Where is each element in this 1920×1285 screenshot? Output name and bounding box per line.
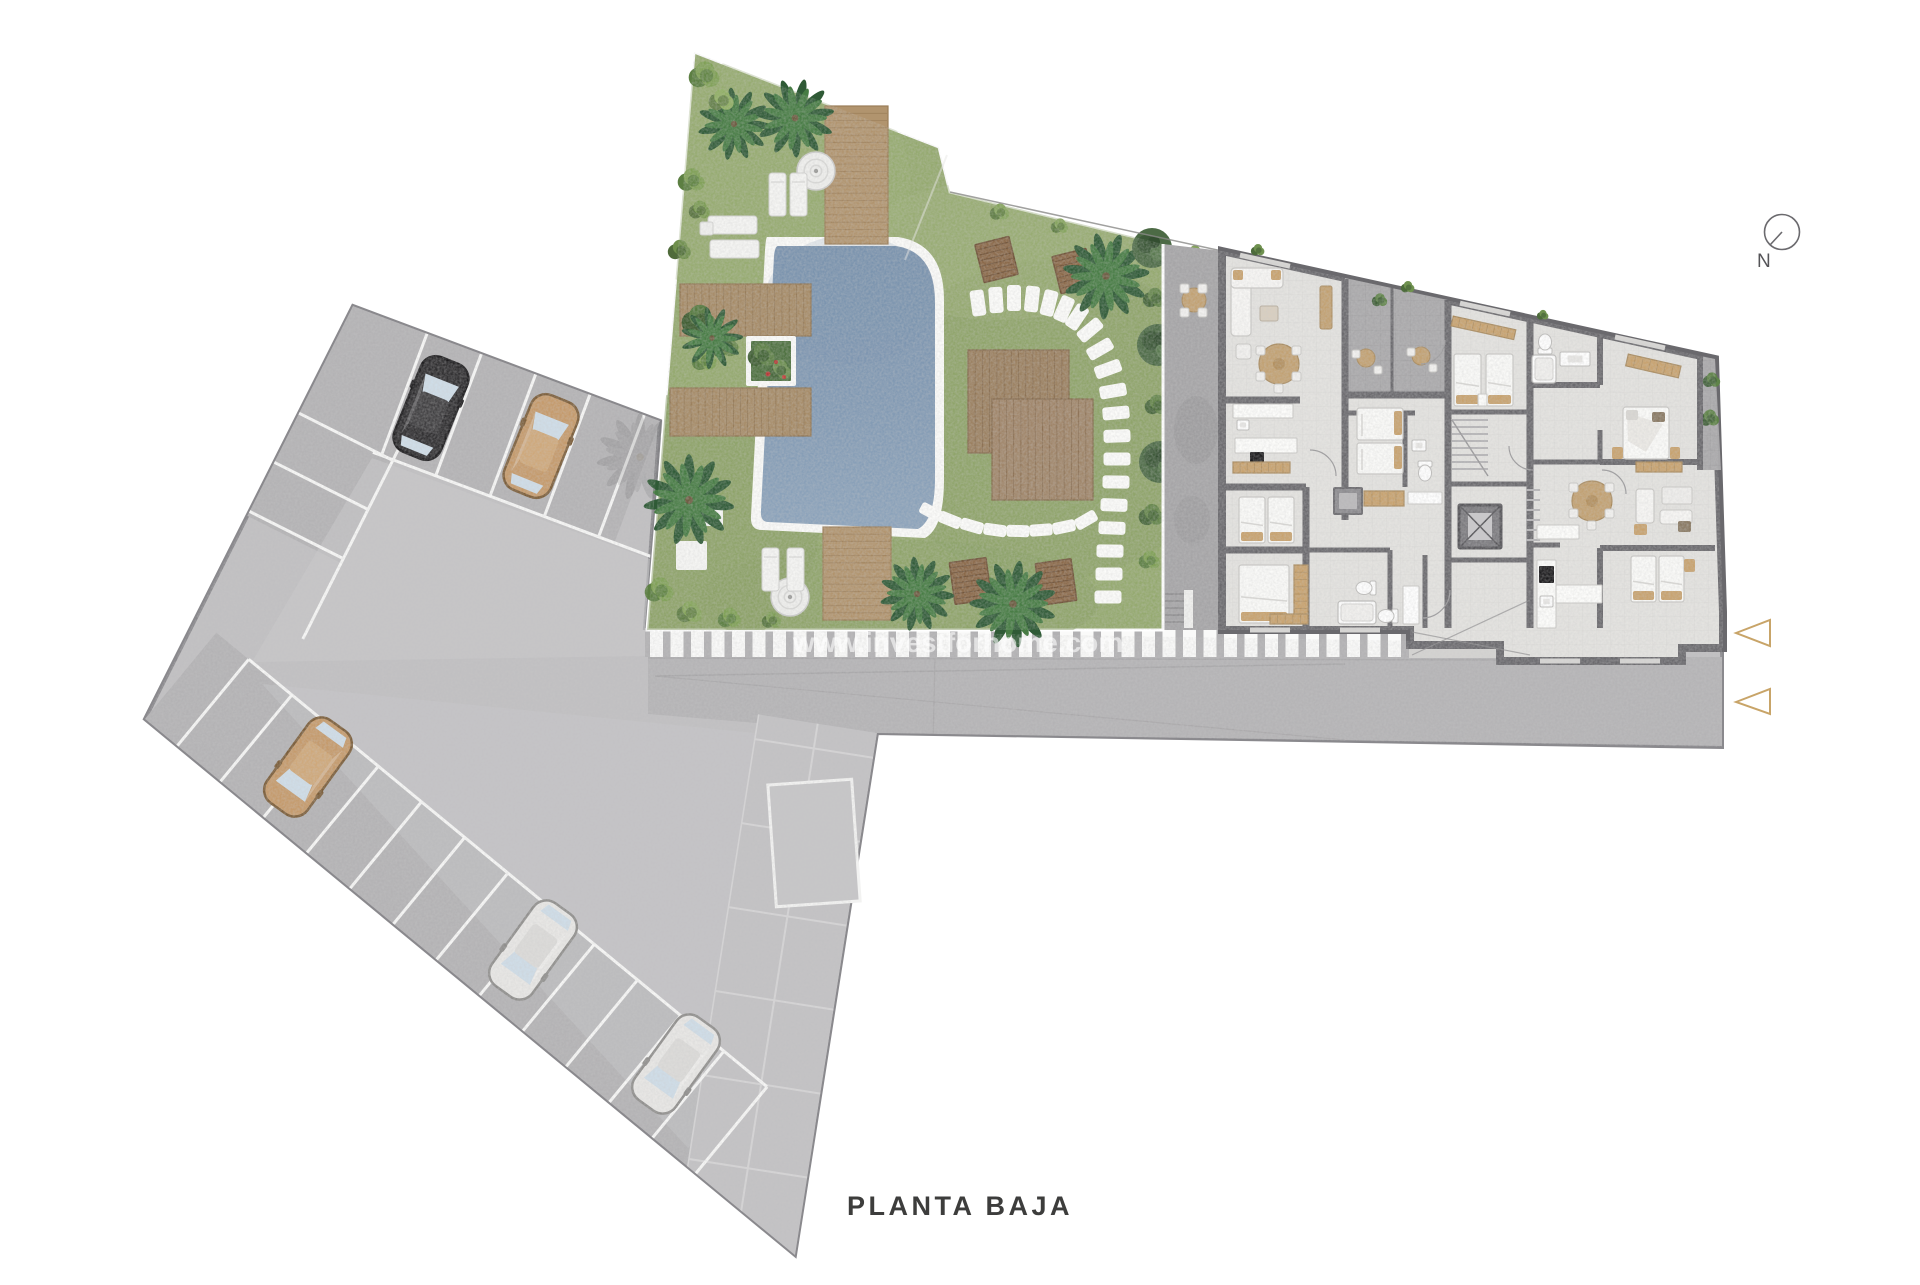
svg-text:www.investforhome.com: www.investforhome.com — [792, 627, 1123, 658]
svg-text:N: N — [1757, 251, 1771, 272]
svg-text:PLANTA BAJA: PLANTA BAJA — [847, 1191, 1073, 1221]
